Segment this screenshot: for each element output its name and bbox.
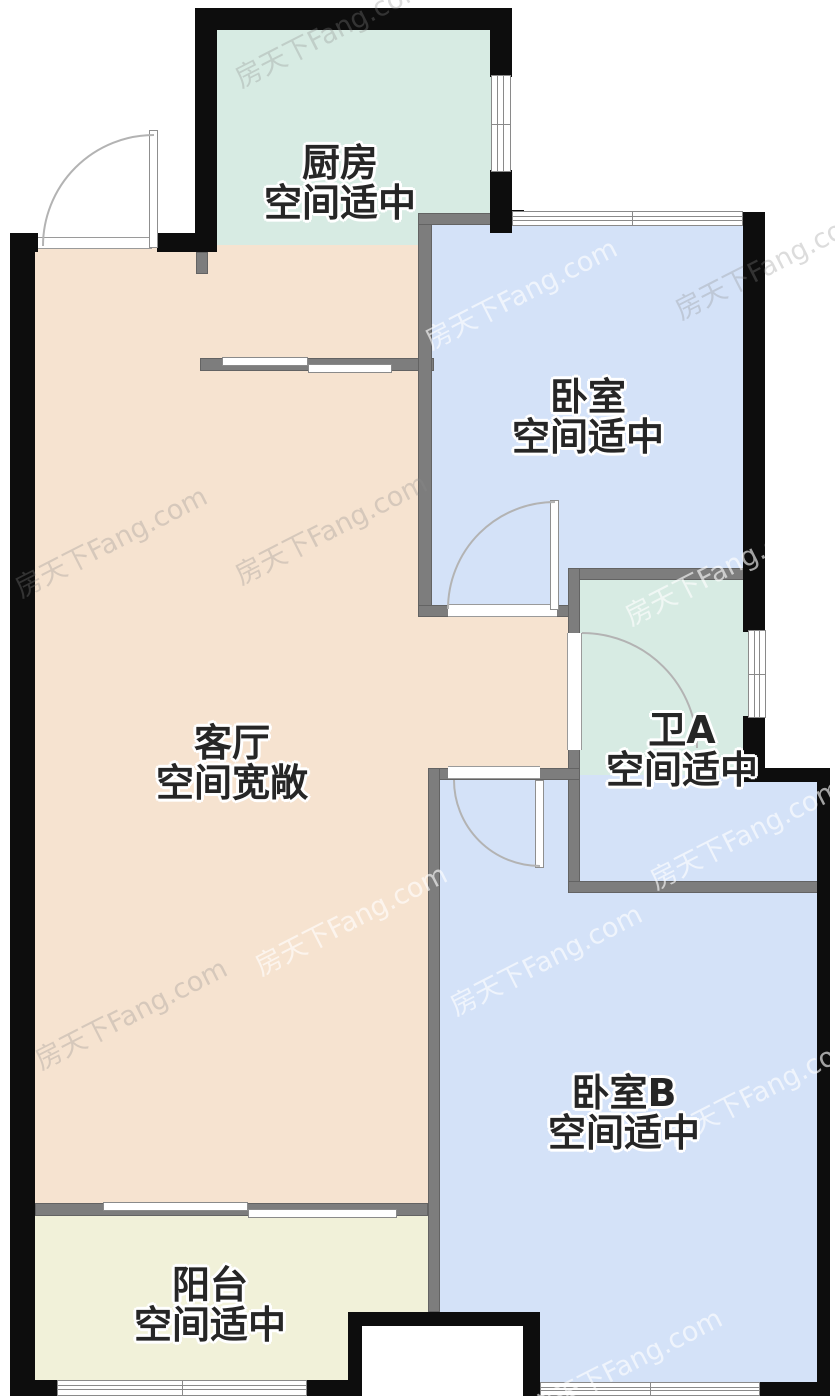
interior-wall	[428, 768, 440, 1312]
room-desc: 空间适中	[548, 1113, 700, 1153]
door-opening	[38, 237, 152, 249]
door-opening	[567, 633, 582, 750]
exterior-wall	[307, 1380, 362, 1396]
room-desc: 空间适中	[264, 183, 416, 223]
room-desc: 空间适中	[134, 1305, 286, 1345]
room-living-hall-floor	[418, 610, 573, 772]
exterior-wall	[817, 782, 830, 1396]
door-leaf	[149, 130, 158, 248]
room-label-balcony: 阳台 空间适中	[134, 1265, 286, 1345]
exterior-wall	[760, 1382, 830, 1396]
exterior-wall	[195, 8, 217, 252]
sliding-door-panel	[248, 1209, 397, 1218]
exterior-wall	[490, 30, 512, 77]
sliding-door-panel	[308, 364, 392, 373]
exterior-wall	[348, 1312, 540, 1326]
room-name: 客厅	[156, 723, 308, 763]
room-label-bedroom-b: 卧室B 空间适中	[548, 1073, 700, 1153]
window	[57, 1380, 307, 1396]
room-name: 卫A	[606, 710, 758, 750]
window	[512, 211, 743, 226]
door-leaf	[535, 780, 544, 868]
interior-wall	[196, 252, 208, 274]
room-name: 卧室	[512, 377, 664, 417]
door-opening	[448, 604, 557, 617]
room-desc: 空间适中	[512, 417, 664, 457]
exterior-wall	[10, 233, 35, 1396]
sliding-door-panel	[222, 357, 308, 366]
room-name: 阳台	[134, 1265, 286, 1305]
room-desc: 空间适中	[606, 750, 758, 790]
room-desc: 空间宽敞	[156, 763, 308, 803]
window	[748, 630, 766, 718]
door-swing	[43, 135, 154, 246]
room-name: 卧室B	[548, 1073, 700, 1113]
room-label-kitchen: 厨房 空间适中	[264, 143, 416, 223]
room-bedroom-b-floor	[435, 775, 820, 1315]
room-label-living: 客厅 空间宽敞	[156, 723, 308, 803]
sliding-door-panel	[103, 1202, 248, 1211]
room-name: 厨房	[264, 143, 416, 183]
interior-wall	[418, 213, 432, 617]
door-opening	[448, 766, 540, 779]
floor-plan: 房天下Fang.com 房天下Fang.com 房天下Fang.com 房天下F…	[0, 0, 835, 1400]
door-leaf	[550, 500, 559, 610]
interior-wall	[568, 881, 820, 893]
room-label-bath-a: 卫A 空间适中	[606, 710, 758, 790]
room-label-bedroom-a: 卧室 空间适中	[512, 377, 664, 457]
window	[491, 75, 511, 172]
